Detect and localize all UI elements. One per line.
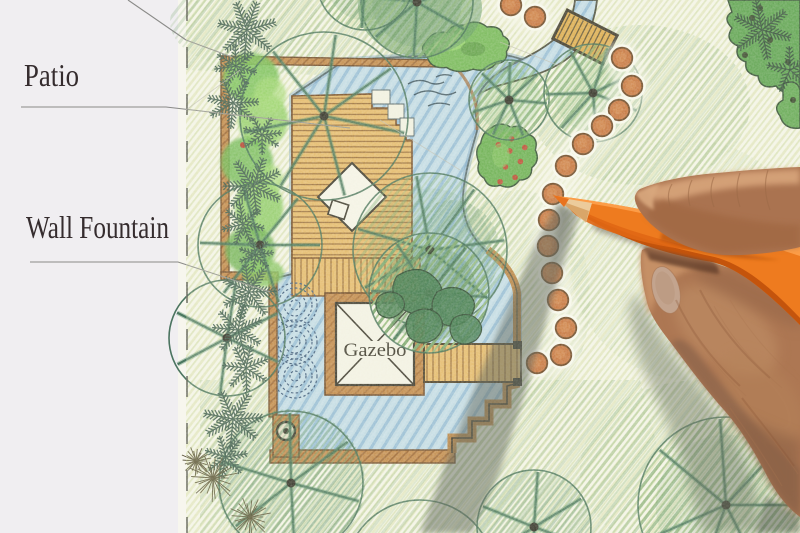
svg-text:Wall Fountain: Wall Fountain xyxy=(26,209,169,245)
svg-text:Patio: Patio xyxy=(24,57,79,93)
